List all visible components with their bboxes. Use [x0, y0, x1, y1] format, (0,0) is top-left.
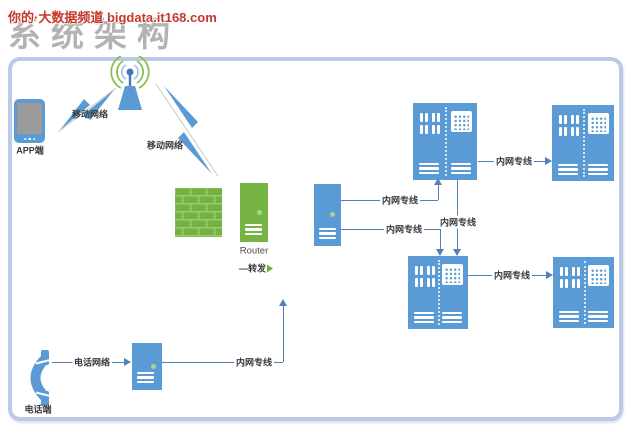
edge-rack-vertical-line — [457, 180, 458, 249]
edge-gateway-top-line-v — [438, 185, 439, 200]
arrowhead-right-icon — [124, 358, 131, 366]
smartphone-icon — [14, 99, 45, 143]
edge-label-intranet-vertical: 内网专线 — [438, 216, 478, 229]
status-led — [330, 212, 335, 217]
arrowhead-up-icon — [279, 299, 287, 306]
edge-label-intranet-gw-bottom: 内网专线 — [384, 223, 424, 236]
router-server-tower-icon — [240, 183, 268, 242]
watermark-text: 你的·大数据频道 bigdata.it168.com — [8, 7, 217, 26]
telephone-handset-icon — [24, 350, 50, 406]
edge-label-intranet-top: 内网专线 — [494, 155, 534, 168]
arrowhead-down-icon — [453, 249, 461, 256]
arrowhead-right-icon — [545, 157, 552, 165]
status-led — [151, 364, 156, 369]
forward-note: —转发 — [237, 262, 275, 275]
edge-label-mobile-network-1: 移动网络 — [70, 108, 110, 121]
router-label: Router — [238, 246, 271, 257]
edge-label-phone-network: 电话网络 — [72, 356, 112, 369]
edge-label-intranet-gw-top: 内网专线 — [380, 194, 420, 207]
forward-arrow-icon — [267, 264, 273, 272]
phone-buttons — [24, 138, 36, 141]
arrowhead-right-icon — [546, 271, 553, 279]
edge-label-mobile-network-2: 移动网络 — [145, 139, 185, 152]
architecture-diagram: 系统架构 你的·大数据频道 bigdata.it168.com APP端 移动网… — [0, 0, 631, 433]
phone-terminal-label: 电话端 — [22, 403, 53, 416]
arrowhead-down-icon — [436, 249, 444, 256]
edge-gateway-bottom-line-v — [440, 229, 441, 250]
arrowhead-up-icon — [434, 178, 442, 185]
edge-label-intranet-voice: 内网专线 — [234, 356, 274, 369]
forward-text: —转发 — [239, 262, 266, 275]
status-led — [257, 210, 262, 215]
firewall-brick-icon — [175, 188, 222, 237]
lightning-bolt-icon — [152, 82, 220, 178]
server-rack-bottom-right-icon — [553, 257, 614, 328]
phone-screen — [17, 103, 42, 134]
server-rack-bottom-left-icon — [408, 256, 468, 329]
app-terminal-label: APP端 — [14, 144, 46, 157]
voice-server-tower-icon — [132, 343, 162, 390]
server-rack-top-left-icon — [413, 103, 477, 180]
edge-voice-uplink-line-v — [283, 305, 284, 362]
server-rack-top-right-icon — [552, 105, 614, 181]
gateway-server-tower-icon — [314, 184, 341, 246]
edge-label-intranet-bottom: 内网专线 — [492, 269, 532, 282]
